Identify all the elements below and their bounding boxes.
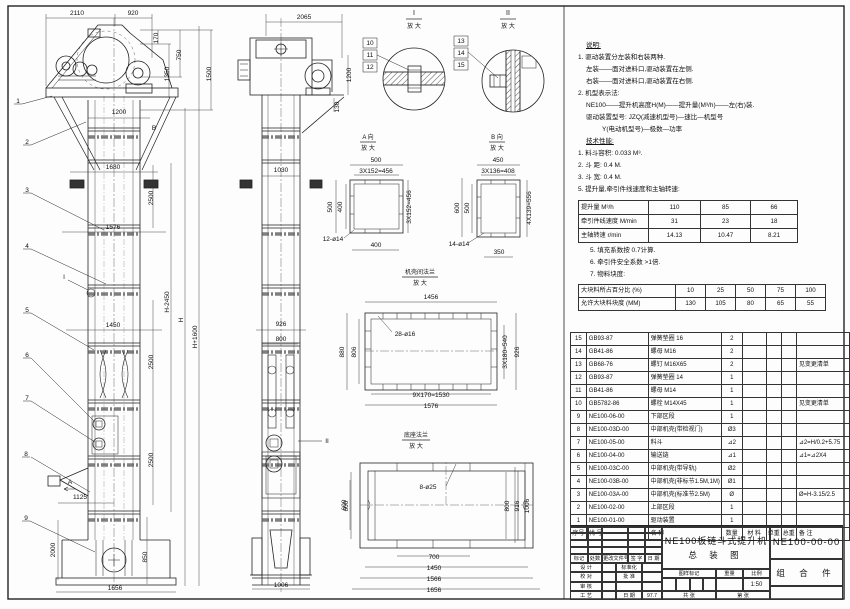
bom-cell (781, 424, 796, 437)
signature-row: 审 核 (570, 582, 662, 591)
dimension-label: 28-ø16 (395, 331, 416, 338)
bom-cell: 2 (721, 359, 742, 372)
drawing-title-line1: NE100板链斗式提升机 (665, 534, 768, 547)
signature-row-cell: 批 准 (616, 572, 642, 581)
bom-cell (781, 359, 796, 372)
bom-cell (781, 437, 796, 450)
note-line: 1. 料斗容积: 0.033 M³. (578, 148, 840, 160)
bom-cell (742, 346, 766, 359)
revision-row-cell (588, 540, 602, 547)
bom-cell (796, 476, 849, 489)
bom-cell (742, 450, 766, 463)
bom-cell: 见变更清单 (796, 398, 849, 411)
notes-section-2: 5. 填充系数按 0.7计算.6. 牵引件安全系数 >1倍.7. 物料块度: (590, 245, 850, 281)
revision-header-cell: 更改文件号 (602, 554, 628, 563)
dimension-label: II (506, 10, 510, 17)
note-line: 6. 牵引件安全系数 >1倍. (590, 257, 850, 269)
weight-value (716, 578, 743, 591)
note-line: 7. 物料块度: (590, 269, 850, 281)
dimension-label: 1350 (164, 66, 171, 81)
signature-row: 校 对批 准 (570, 572, 662, 581)
bom-cell (796, 411, 849, 424)
bom-cell (781, 385, 796, 398)
bom-cell: 8 (571, 424, 587, 437)
bom-cell: 见变更清单 (796, 359, 849, 372)
bom-cell (766, 489, 781, 502)
note-line: 说明: (578, 40, 840, 52)
revision-header-cell: 处数 (588, 554, 602, 563)
bom-cell (796, 385, 849, 398)
stamp-header-mark: 图样标记 (662, 569, 716, 578)
bom-cell: 2 (721, 346, 742, 359)
revision-header-cell: 日 期 (645, 554, 662, 563)
dimension-label: 10 (366, 40, 374, 47)
dimension-label: 3X180=540 (502, 335, 509, 369)
dimension-label: I (413, 10, 415, 17)
dimension-label: 170 (153, 32, 160, 43)
signature-row-cell: 校 对 (570, 572, 602, 581)
dimension-label: II (325, 438, 329, 445)
bom-cell: 螺栓 M14X45 (648, 398, 721, 411)
performance-cell: 110 (649, 201, 701, 215)
bom-cell (742, 411, 766, 424)
revision-row-cell (588, 526, 602, 533)
bom-cell (766, 333, 781, 346)
dimension-label: 1006 (524, 498, 531, 513)
dimension-label: 800 (276, 336, 287, 343)
bom-cell: NE100-03B-00 (586, 476, 648, 489)
bom-cell (796, 463, 849, 476)
lump-cell: 50 (736, 285, 766, 298)
note-line: 左装——面对进料口,驱动装置在左侧. (578, 64, 840, 76)
note-line: 驱动装置型号: JZQ(减速机型号)—速比—机型号 (578, 112, 840, 124)
bom-cell: ⊿1 (721, 450, 742, 463)
dimension-label: 1656 (108, 585, 123, 592)
revision-row-cell (588, 533, 602, 540)
bom-cell: 1 (721, 398, 742, 411)
dimension-label: 1200 (112, 109, 127, 116)
dimension-label: 14 (457, 50, 465, 57)
bom-cell: 中部机壳(标准节2.5M) (648, 489, 721, 502)
revision-row (570, 540, 662, 547)
base-flange-detail (351, 440, 540, 589)
bom-cell (781, 411, 796, 424)
dimension-label: 12-ø14 (323, 236, 344, 243)
revision-row-cell (570, 533, 588, 540)
balloon-2: 2 (25, 139, 29, 146)
dimension-label: 130 (334, 101, 341, 112)
dimension-label: 500 (371, 157, 382, 164)
dimension-label: 1566 (427, 576, 442, 583)
bom-cell: 输送链 (648, 450, 721, 463)
dimension-label: 2110 (70, 10, 84, 17)
revision-row-cell (602, 526, 628, 533)
dimension-label: 11 (367, 52, 374, 59)
dimension-label: 1656 (427, 587, 442, 594)
revision-header: 标记处数更改文件号签 字日 期 (570, 554, 662, 563)
drawing-title-line2: 总 装 图 (688, 549, 743, 561)
dimension-label: 2500 (148, 452, 155, 467)
revision-row-cell (645, 547, 662, 554)
bom-cell: 中部机壳(带导轨) (648, 463, 721, 476)
dimension-label: A (68, 479, 73, 486)
bom-cell: 上部区段 (648, 502, 721, 515)
bom-cell (781, 450, 796, 463)
bom-cell: 2 (571, 502, 587, 515)
stamp-box (690, 578, 703, 591)
signature-row-cell (602, 582, 616, 591)
bom-cell (742, 424, 766, 437)
bom-cell (796, 372, 849, 385)
performance-cell: 66 (751, 201, 798, 215)
dimension-label: 880 (339, 346, 346, 357)
revision-row-cell (570, 547, 588, 554)
dimension-label: 9X170=1530 (412, 392, 449, 399)
bom-cell: NE100-04-00 (586, 450, 648, 463)
lump-cell: 130 (676, 298, 706, 311)
stamp-box (676, 578, 690, 591)
drawing-title: NE100板链斗式提升机 总 装 图 (662, 526, 770, 569)
bom-cell: 5 (571, 463, 587, 476)
bom-cell: 弹簧垫圈 14 (648, 372, 721, 385)
dimension-label: 700 (429, 554, 440, 561)
bom-cell: GB5782-86 (586, 398, 648, 411)
dimension-label: I (63, 274, 65, 281)
bom-cell (781, 476, 796, 489)
lump-size-table: 大块料所占百分比 (%)10255075100允许大块料块度 (MM)13010… (578, 284, 826, 311)
signature-row: 工 艺日 期97.7 (570, 591, 662, 600)
dimension-label: 926 (514, 346, 521, 357)
bom-cell: 1 (721, 385, 742, 398)
bom-cell: 1 (721, 502, 742, 515)
dimension-label: 2065 (297, 14, 312, 21)
dimension-label: 放 大 (501, 22, 515, 30)
revision-row-cell (570, 526, 588, 533)
dimension-label: 3X152=456 (406, 190, 413, 224)
stamp-header-weight: 重量 (716, 569, 743, 578)
bom-cell (766, 359, 781, 372)
dimension-label: 1006 (274, 582, 289, 589)
dimension-label: 1456 (424, 294, 439, 301)
dimension-label: 920 (128, 10, 139, 17)
revision-header-cell: 签 字 (628, 554, 645, 563)
dimension-label: 放 大 (413, 279, 427, 287)
dimension-label: B 向 (491, 133, 503, 141)
note-line: 1. 驱动装置分左装和右装两种. (578, 52, 840, 64)
bom-cell (742, 398, 766, 411)
revision-row-cell (602, 547, 628, 554)
bom-cell: Ø1 (721, 476, 742, 489)
bom-cell: GB68-76 (586, 359, 648, 372)
lump-cell: 105 (706, 298, 736, 311)
bom-cell: 13 (571, 359, 587, 372)
balloon-6: 6 (25, 352, 29, 359)
signature-row-cell (602, 591, 616, 600)
bom-cell: 15 (571, 333, 587, 346)
dimension-label: 8-ø25 (420, 484, 437, 491)
revision-row (570, 526, 662, 533)
bom-cell (766, 437, 781, 450)
bom-cell: GB41-86 (586, 385, 648, 398)
signature-row-cell (616, 582, 642, 591)
dimension-label: H+1600 (192, 325, 199, 348)
bom-cell (781, 346, 796, 359)
title-block-empty (770, 586, 843, 600)
revision-row-cell (602, 540, 628, 547)
side-view (238, 18, 344, 592)
dimension-label: 12 (366, 64, 374, 71)
dimension-label: 1030 (274, 167, 289, 174)
sheet-count: 共 张 (662, 591, 716, 600)
dimension-label: H (178, 317, 185, 322)
revision-row-cell (570, 540, 588, 547)
signature-row: 设 计标准化 (570, 563, 662, 572)
dimension-label: 底座法兰 (404, 431, 428, 439)
revision-row-cell (628, 533, 645, 540)
performance-cell: 31 (649, 215, 701, 229)
signature-row-cell: 97.7 (642, 591, 662, 600)
signature-row-cell: 审 核 (570, 582, 602, 591)
bom-cell: 下部区段 (648, 411, 721, 424)
dimension-lines (46, 14, 350, 592)
dimension-label: 1200 (346, 67, 353, 82)
dimension-label: 1576 (106, 224, 121, 231)
bom-cell (766, 476, 781, 489)
dimension-label: 600 (454, 202, 461, 213)
bom-cell (781, 398, 796, 411)
bom-cell: 螺母 M14 (648, 385, 721, 398)
bom-cell: Ø=H-3.15/2.5 (796, 489, 849, 502)
performance-cell: 18 (751, 215, 798, 229)
dimension-label: 放 大 (409, 442, 423, 450)
signature-row-cell (602, 572, 616, 581)
dimension-label: 500 (464, 202, 471, 213)
performance-cell: 主轴转速 r/min (579, 229, 649, 243)
revision-row-cell (602, 533, 628, 540)
lump-cell: 100 (796, 285, 826, 298)
lump-cell: 80 (736, 298, 766, 311)
lump-cell: 10 (676, 285, 706, 298)
lump-cell: 允许大块料块度 (MM) (579, 298, 676, 311)
bom-cell (766, 398, 781, 411)
balloon-4: 4 (25, 243, 29, 250)
revision-row-cell (628, 526, 645, 533)
bom-cell (766, 411, 781, 424)
performance-cell: 10.47 (701, 229, 751, 243)
lump-cell: 55 (796, 298, 826, 311)
dimension-label: 3X136=408 (481, 168, 515, 175)
dimension-label: 450 (493, 157, 504, 164)
bom-cell (796, 346, 849, 359)
bom-cell (766, 385, 781, 398)
stamp-box (703, 578, 716, 591)
bom-cell: 1 (721, 372, 742, 385)
dimension-label: H-2450 (164, 291, 171, 313)
signature-row-cell (602, 563, 616, 572)
bom-cell: NE100-03A-00 (586, 489, 648, 502)
bom-cell (766, 424, 781, 437)
dimension-label: A 向 (362, 133, 373, 141)
bom-cell: 中部机壳(非标节1.5M,1M) (648, 476, 721, 489)
bom-cell (742, 333, 766, 346)
dimension-label: 2500 (148, 354, 155, 369)
engineering-drawing-sheet: 2110920170750135015001200B16801576145025… (0, 0, 850, 609)
bom-cell (781, 463, 796, 476)
bom-cell (781, 333, 796, 346)
bom-cell: Ø3 (721, 424, 742, 437)
dimension-label: 806 (351, 346, 358, 357)
stamp-header-scale: 比例 (743, 569, 770, 578)
scale-value: 1:50 (743, 578, 770, 591)
bom-cell: 3 (571, 489, 587, 502)
note-line: 2. 斗 距: 0.4 M. (578, 160, 840, 172)
dimension-label: 放 大 (361, 144, 375, 152)
note-line: 3. 斗 宽: 0.4 M. (578, 172, 840, 184)
bom-cell: Ø2 (721, 463, 742, 476)
dimension-label: 4X139=556 (526, 191, 533, 225)
revision-row (570, 547, 662, 554)
revision-row-cell (645, 540, 662, 547)
dimension-label: 2500 (148, 190, 155, 205)
dimension-label: 放 大 (490, 144, 504, 152)
bom-cell: 螺母 M16 (648, 346, 721, 359)
note-line: 2. 机型表示法: (578, 88, 840, 100)
dimension-label: 15 (457, 62, 465, 69)
lump-cell: 75 (766, 285, 796, 298)
signature-row-cell: 标准化 (616, 563, 642, 572)
bom-cell: NE100-02-00 (586, 502, 648, 515)
title-block-revision-grid: 标记处数更改文件号签 字日 期设 计标准化校 对批 准审 核工 艺日 期97.7 (570, 526, 662, 600)
bom-cell (766, 346, 781, 359)
bom-cell: ⊿2=H/0.2+5.75 (796, 437, 849, 450)
revision-header-cell: 标记 (570, 554, 588, 563)
dimension-label: 500 (327, 201, 334, 212)
dimension-label: 13 (457, 38, 465, 45)
bom-cell: 6 (571, 450, 587, 463)
bom-cell (796, 502, 849, 515)
bom-cell (796, 333, 849, 346)
bom-cell: Ø (721, 489, 742, 502)
bom-cell (781, 502, 796, 515)
bom-cell: 14 (571, 346, 587, 359)
dimension-label: 1450 (427, 565, 442, 572)
revision-row-cell (628, 547, 645, 554)
bom-cell: 7 (571, 437, 587, 450)
note-line: 5. 提升量,牵引件线速度和主轴转速: (578, 184, 840, 196)
bom-cell: NE100-05-00 (586, 437, 648, 450)
note-line: NE100——提升机高度H(M)——提升量(M³/h)——左(右)装. (578, 100, 840, 112)
bom-cell (742, 385, 766, 398)
performance-cell: 牵引件线速度 M/min (579, 215, 649, 229)
bom-cell: 中部机壳(带检视门) (648, 424, 721, 437)
balloon-5: 5 (25, 307, 29, 314)
stamp-box (662, 578, 676, 591)
signature-row-cell (642, 582, 662, 591)
bom-cell: 料斗 (648, 437, 721, 450)
bom-cell (766, 463, 781, 476)
revision-row-cell (628, 540, 645, 547)
note-line: Y(电动机型号)—极数—功率 (578, 124, 840, 136)
performance-cell: 提升量 M³/h (579, 201, 649, 215)
title-block: 标记处数更改文件号签 字日 期设 计标准化校 对批 准审 核工 艺日 期97.7… (570, 525, 843, 600)
dimension-label: 850 (142, 551, 149, 562)
signature-row-cell: 日 期 (616, 591, 642, 600)
dimension-label: 1576 (424, 403, 439, 410)
bom-cell: GB93-87 (586, 333, 648, 346)
performance-cell: 14.13 (649, 229, 701, 243)
signature-row-cell (642, 563, 662, 572)
boot-section (56, 540, 176, 585)
balloon-8: 8 (24, 451, 28, 458)
front-view (14, 18, 178, 590)
bom-cell: 2 (721, 333, 742, 346)
dimension-label: 放 大 (407, 22, 421, 30)
dimension-label: B (152, 125, 156, 132)
dimension-label: 926 (276, 321, 287, 328)
bom-cell: ⊿1=⊿2X4 (796, 450, 849, 463)
bom-cell (766, 450, 781, 463)
detail-I (363, 19, 446, 110)
performance-cell: 23 (701, 215, 751, 229)
notes-section: 说明:1. 驱动装置分左装和右装两种.左装——面对进料口,驱动装置在左侧.右装—… (578, 40, 840, 196)
bom-cell: NE100-03D-00 (586, 424, 648, 437)
bom-cell: NE100-06-00 (586, 411, 648, 424)
revision-row-cell (645, 533, 662, 540)
bom-cell: GB93-87 (586, 372, 648, 385)
bom-cell (742, 463, 766, 476)
revision-row-cell (588, 547, 602, 554)
lump-cell: 大块料所占百分比 (%) (579, 285, 676, 298)
dimension-label: 1125 (73, 494, 87, 501)
bom-cell (742, 437, 766, 450)
note-line: 技术性能: (578, 136, 840, 148)
dimension-label: 1500 (206, 66, 213, 81)
detail-II (454, 19, 544, 112)
dimension-label: 2000 (50, 542, 57, 557)
performance-table: 提升量 M³/h1108566牵引件线速度 M/min312318主轴转速 r/… (578, 200, 798, 243)
bom-cell: GB41-86 (586, 346, 648, 359)
dimension-label: 机壳间法兰 (405, 268, 435, 276)
balloon-3: 3 (25, 187, 29, 194)
dimension-label: 1450 (106, 322, 121, 329)
balloon-7: 7 (25, 395, 29, 402)
dimension-label: 400 (337, 201, 344, 212)
bom-cell (781, 489, 796, 502)
signature-row-cell: 设 计 (570, 563, 602, 572)
bom-cell: 4 (571, 476, 587, 489)
sheet-number: 第 张 (716, 591, 770, 600)
lump-cell: 65 (766, 298, 796, 311)
note-line: 5. 填充系数按 0.7计算. (590, 245, 850, 257)
bom-cell: 11 (571, 385, 587, 398)
bom-cell (766, 372, 781, 385)
dimension-label: 350 (494, 249, 505, 256)
dimension-label: 1680 (106, 164, 121, 171)
bom-cell: 10 (571, 398, 587, 411)
bom-cell: 弹簧垫圈 16 (648, 333, 721, 346)
dimension-label: 750 (176, 49, 183, 60)
bom-cell (742, 372, 766, 385)
bom-cell: 螺钉 M16X65 (648, 359, 721, 372)
balloon-1: 1 (16, 98, 20, 105)
performance-cell: 8.21 (751, 229, 798, 243)
bom-cell (742, 489, 766, 502)
bom-cell (742, 476, 766, 489)
bom-cell: 9 (571, 411, 587, 424)
dimension-label: 400 (371, 242, 382, 249)
signature-row-cell (642, 572, 662, 581)
performance-cell: 85 (701, 201, 751, 215)
